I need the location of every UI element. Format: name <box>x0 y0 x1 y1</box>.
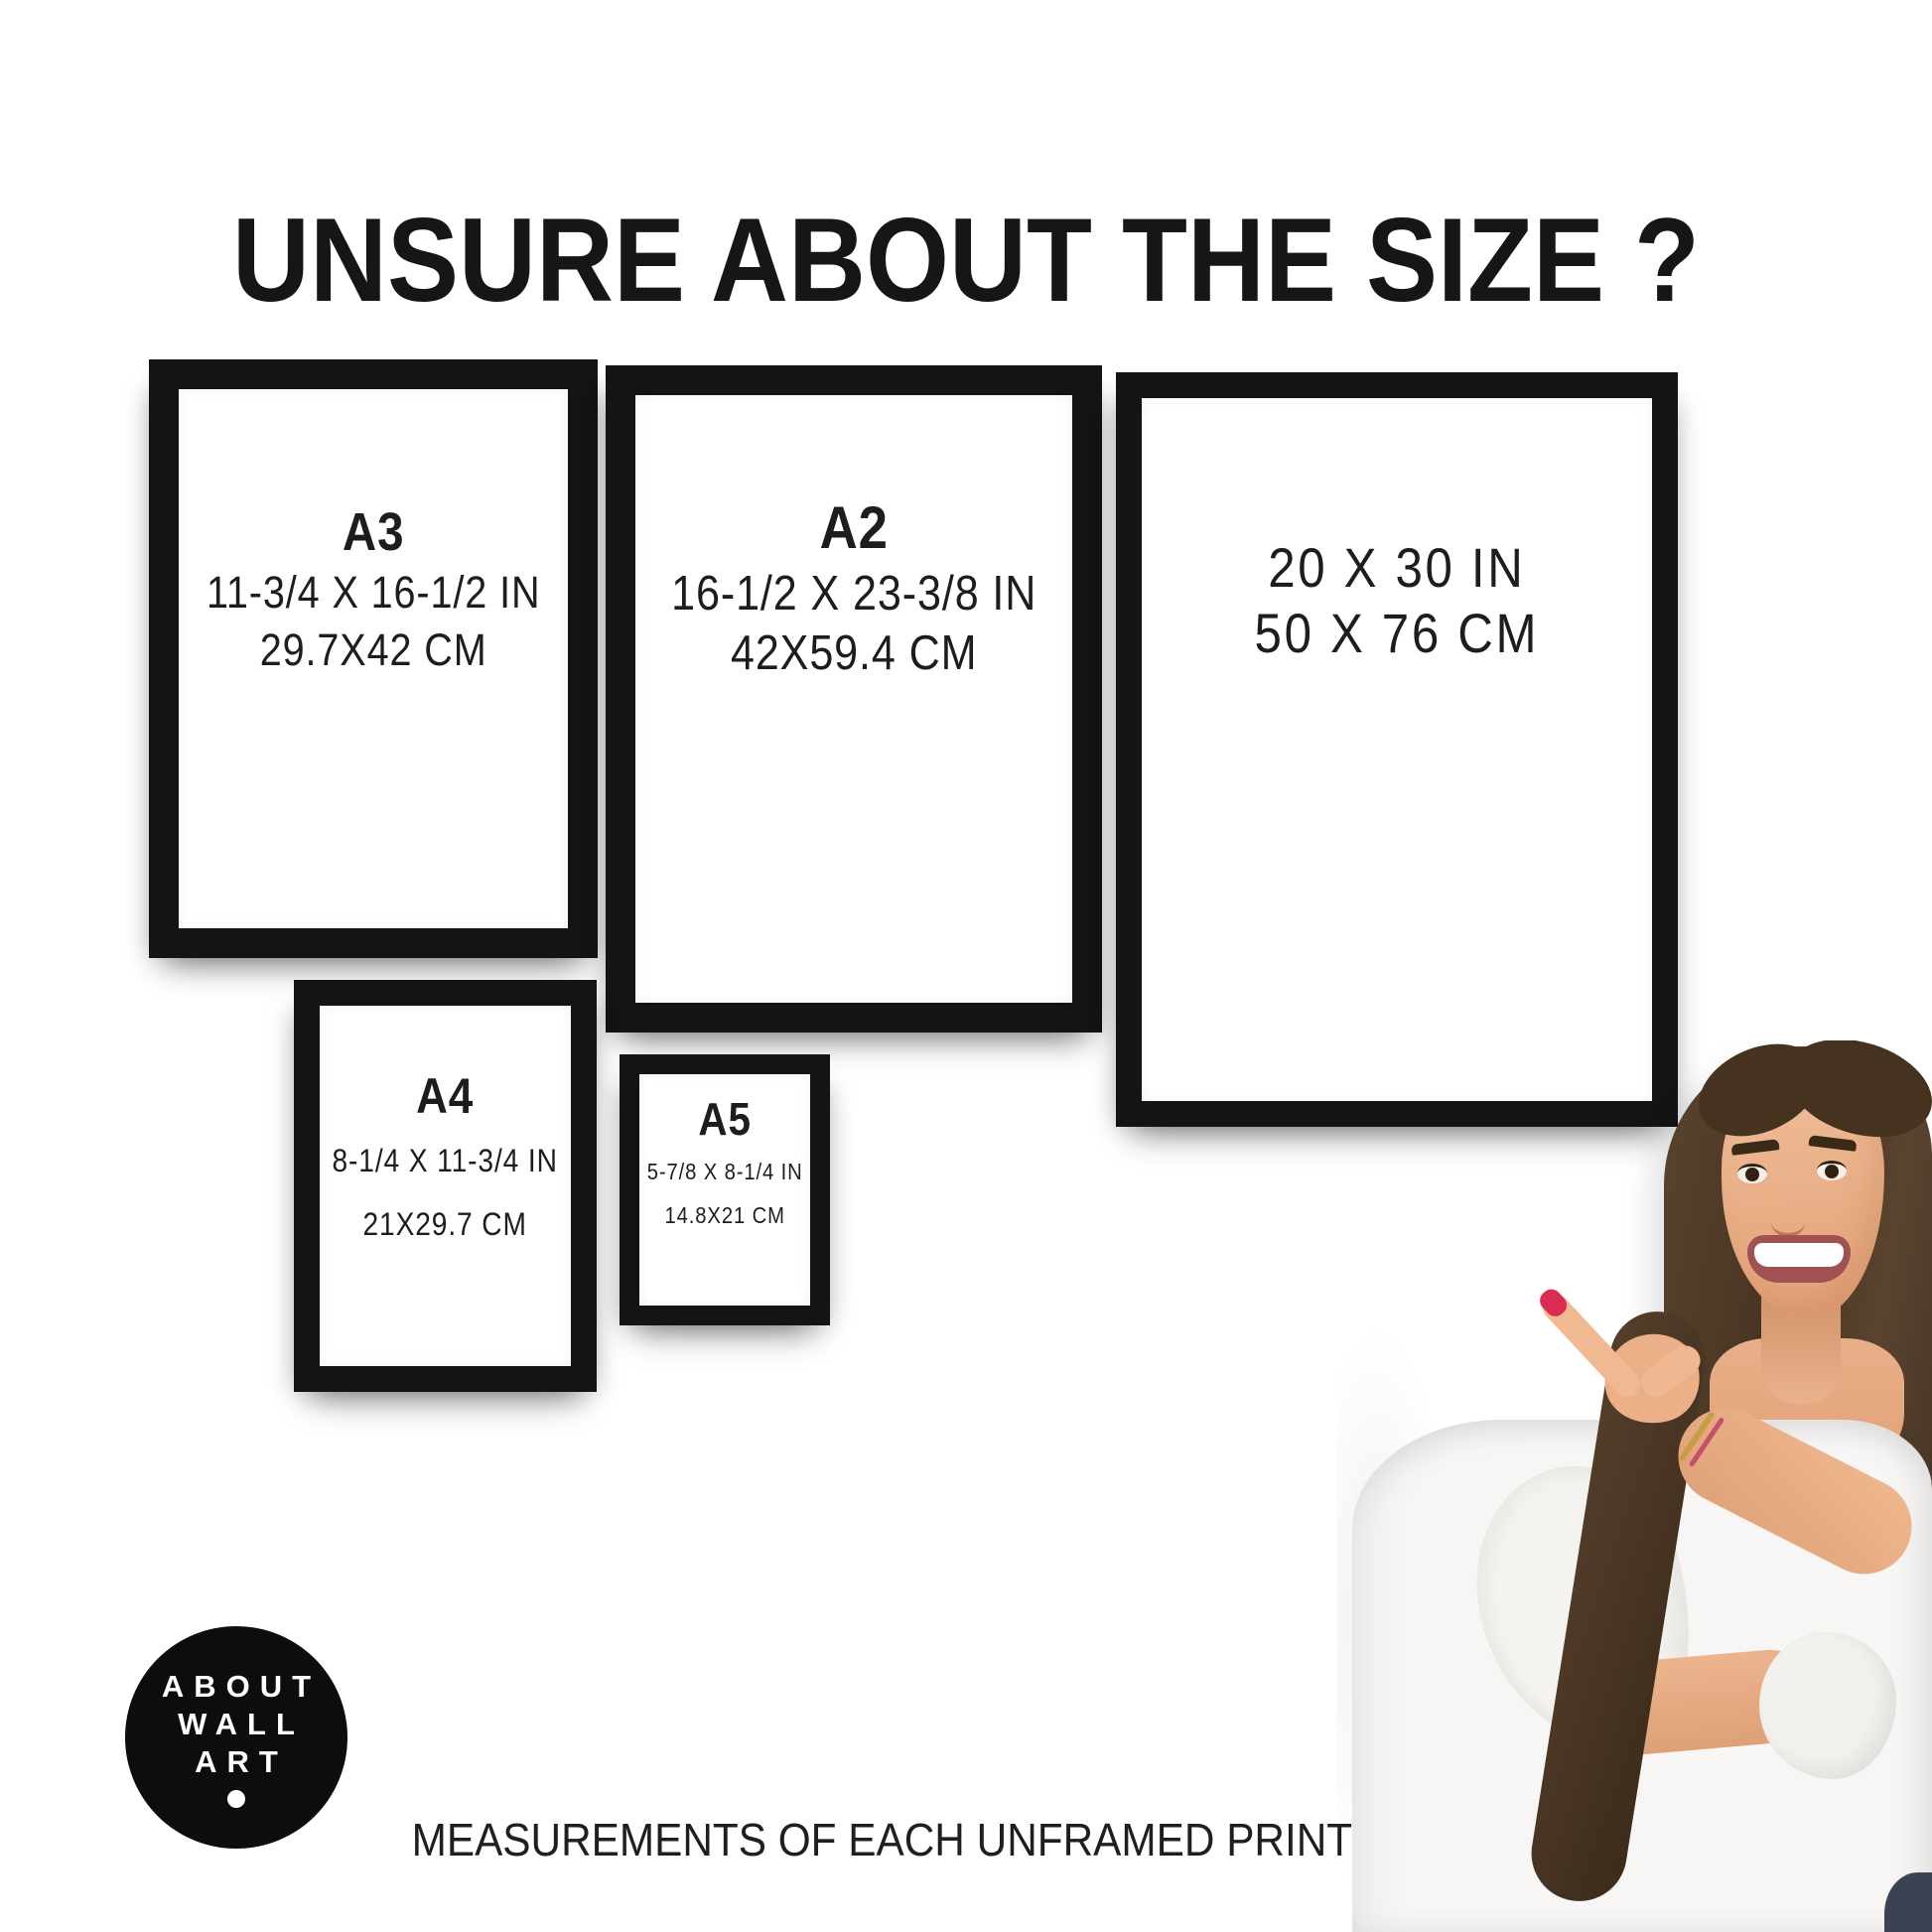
woman-right-iris <box>1825 1165 1839 1178</box>
measurements-note: MEASUREMENTS OF EACH UNFRAMED PRINT/POST… <box>412 1813 1362 1866</box>
woman-teeth <box>1754 1243 1844 1267</box>
frame-a5-size-inches: 5-7/8 X 8-1/4 IN <box>647 1154 803 1189</box>
frame-a3: A3 11-3/4 X 16-1/2 IN 29.7X42 CM <box>149 359 598 958</box>
frame-a4-text: A4 8-1/4 X 11-3/4 IN 21X29.7 CM <box>333 1006 558 1366</box>
frame-a5-text: A5 5-7/8 X 8-1/4 IN 14.8X21 CM <box>647 1074 803 1306</box>
frame-20x30-text: 20 X 30 IN 50 X 76 CM <box>1255 398 1540 1101</box>
page-title: UNSURE ABOUT THE SIZE ? <box>96 195 1835 326</box>
frame-20x30: 20 X 30 IN 50 X 76 CM <box>1116 372 1678 1127</box>
woman-smile <box>1747 1235 1851 1283</box>
frame-a5-size-cm: 14.8X21 CM <box>647 1197 803 1233</box>
frame-a4-label: A4 <box>333 1065 558 1127</box>
brand-logo-line-art: ART <box>185 1743 288 1781</box>
frame-20x30-size-inches: 20 X 30 IN <box>1255 535 1540 601</box>
frame-a3-text: A3 11-3/4 X 16-1/2 IN 29.7X42 CM <box>207 389 540 928</box>
frame-a2-text: A2 16-1/2 X 23-3/8 IN 42X59.4 CM <box>671 395 1036 1003</box>
brand-logo: ABOUT WALL ART <box>125 1626 347 1849</box>
frame-a3-label: A3 <box>207 500 540 564</box>
frame-a2-size-cm: 42X59.4 CM <box>671 623 1036 683</box>
brand-logo-line-wall: WALL <box>168 1706 305 1743</box>
woman-right-eye <box>1817 1161 1847 1180</box>
frame-a5: A5 5-7/8 X 8-1/4 IN 14.8X21 CM <box>620 1054 830 1325</box>
frame-a3-size-inches: 11-3/4 X 16-1/2 IN <box>207 564 540 621</box>
frame-a2: A2 16-1/2 X 23-3/8 IN 42X59.4 CM <box>606 365 1102 1033</box>
frame-a4-size-cm: 21X29.7 CM <box>333 1200 558 1248</box>
frame-a4: A4 8-1/4 X 11-3/4 IN 21X29.7 CM <box>294 980 597 1392</box>
woman-photo <box>1336 1040 1932 1932</box>
frame-a3-size-cm: 29.7X42 CM <box>207 621 540 679</box>
frame-a2-label: A2 <box>671 492 1036 564</box>
brand-logo-dot <box>227 1790 245 1808</box>
brand-logo-line-about: ABOUT <box>152 1668 321 1706</box>
frame-a2-size-inches: 16-1/2 X 23-3/8 IN <box>671 564 1036 623</box>
frame-a4-size-inches: 8-1/4 X 11-3/4 IN <box>333 1137 558 1184</box>
woman-left-eye <box>1737 1164 1767 1183</box>
frame-20x30-size-cm: 50 X 76 CM <box>1255 601 1540 666</box>
woman-sleeve-cuff <box>1759 1632 1896 1779</box>
woman-left-iris <box>1745 1168 1759 1181</box>
woman-nose <box>1771 1207 1805 1237</box>
frame-a5-label: A5 <box>647 1090 803 1148</box>
